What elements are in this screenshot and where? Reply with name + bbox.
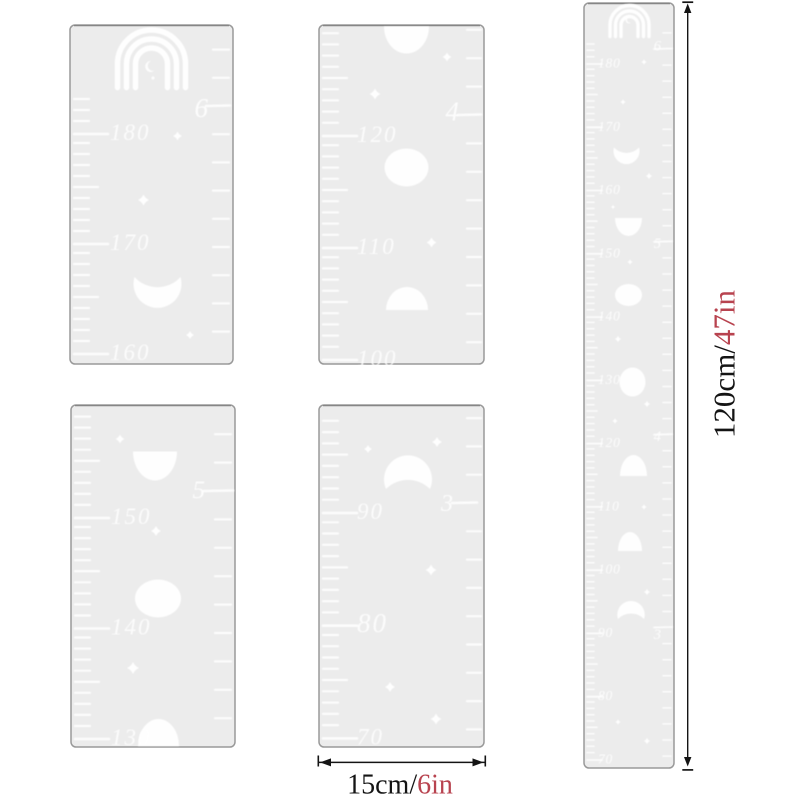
svg-text:90: 90	[598, 625, 613, 640]
svg-text:170: 170	[598, 119, 621, 134]
svg-text:150: 150	[598, 245, 621, 260]
svg-text:4: 4	[654, 429, 661, 445]
svg-text:100: 100	[598, 562, 621, 577]
svg-text:180: 180	[110, 120, 151, 145]
svg-text:5: 5	[654, 236, 661, 252]
svg-text:120: 120	[598, 435, 621, 450]
svg-text:180: 180	[598, 56, 621, 71]
svg-text:170: 170	[110, 230, 151, 255]
svg-text:6: 6	[195, 93, 209, 123]
svg-text:80: 80	[357, 608, 388, 638]
svg-text:120: 120	[357, 122, 398, 147]
svg-text:90: 90	[357, 499, 384, 524]
svg-text:80: 80	[598, 688, 613, 703]
svg-text:140: 140	[598, 309, 621, 324]
svg-text:110: 110	[598, 498, 620, 513]
svg-text:140: 140	[111, 615, 152, 640]
svg-text:110: 110	[357, 234, 396, 259]
svg-text:150: 150	[111, 504, 152, 529]
svg-text:4: 4	[446, 97, 460, 127]
svg-text:70: 70	[598, 752, 613, 767]
svg-text:100: 100	[357, 346, 398, 371]
svg-text:15cm/6in: 15cm/6in	[347, 770, 453, 800]
svg-text:5: 5	[193, 477, 206, 504]
svg-text:160: 160	[598, 182, 621, 197]
svg-text:70: 70	[357, 725, 384, 750]
svg-text:3: 3	[440, 491, 453, 517]
svg-text:120cm/47in: 120cm/47in	[707, 289, 742, 438]
svg-text:6: 6	[654, 39, 662, 55]
svg-text:130: 130	[598, 372, 621, 387]
svg-text:160: 160	[110, 340, 151, 365]
svg-text:3: 3	[653, 627, 661, 643]
